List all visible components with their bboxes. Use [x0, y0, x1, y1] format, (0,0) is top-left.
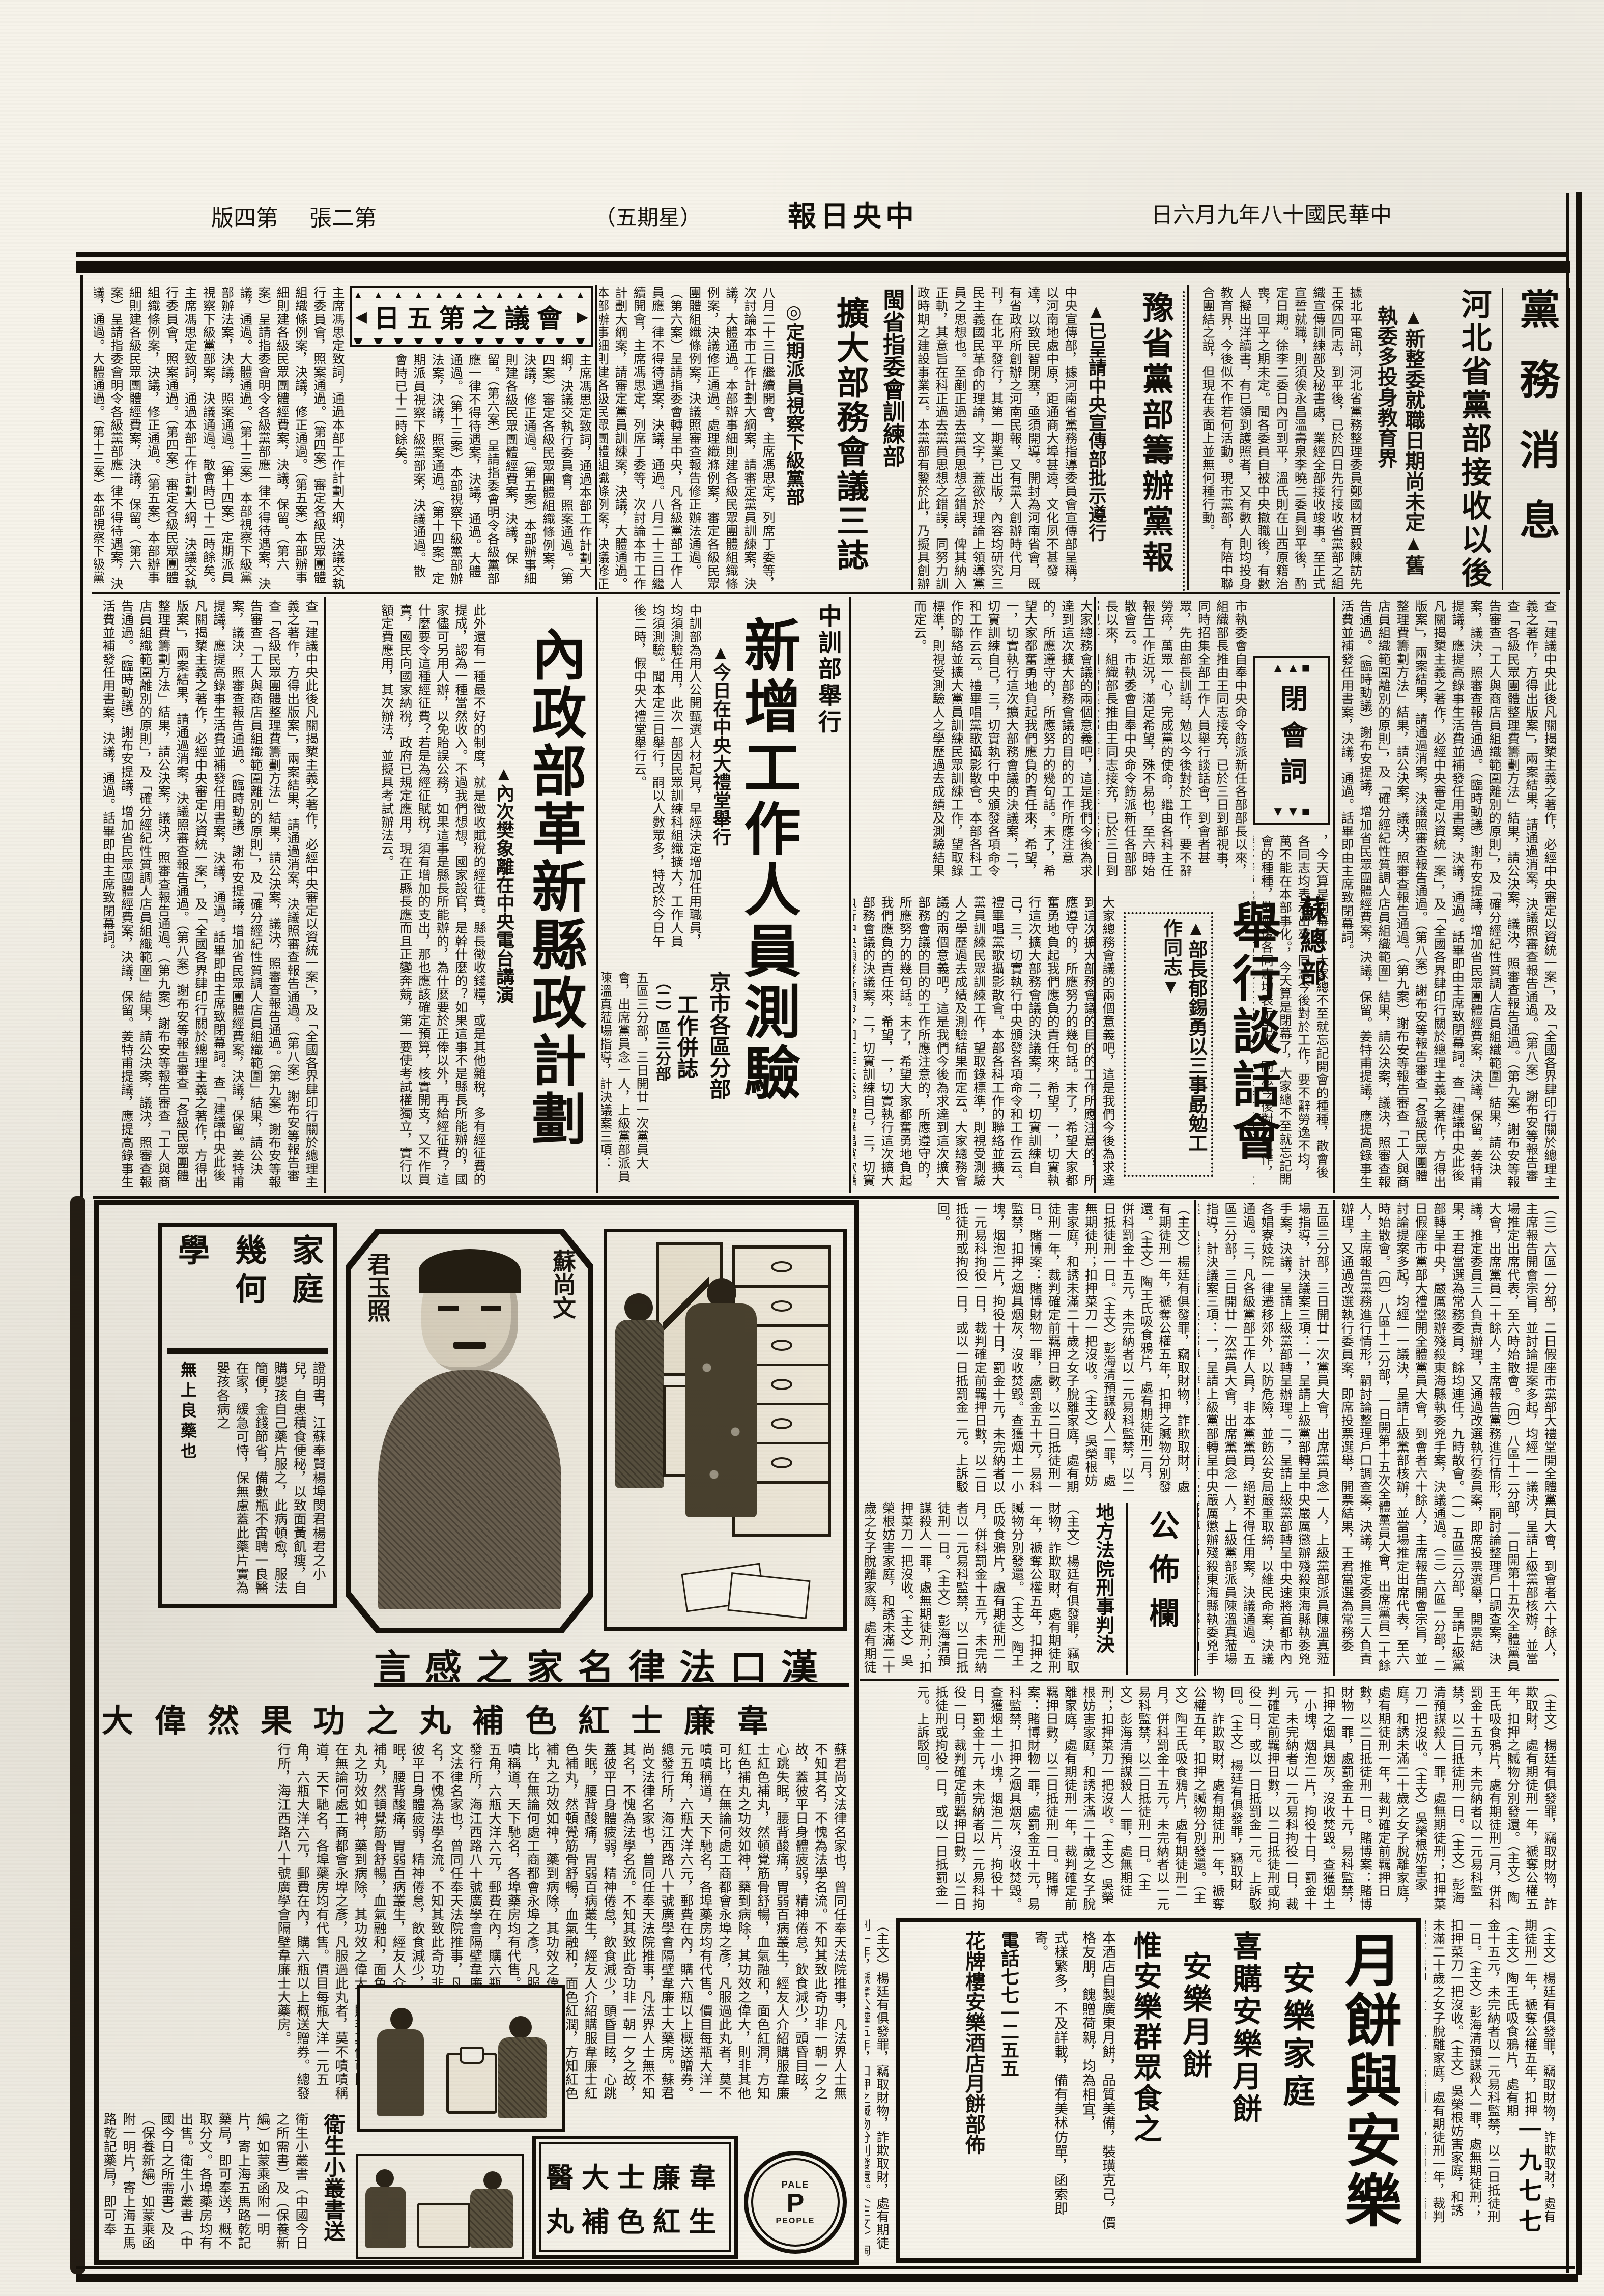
- meeting-day5-body: 主席馮思定致詞，通過本部工作計劃大綱，決議交執行委員會，照案通過。（第四案）審定…: [350, 353, 593, 590]
- subhead-yu: ▲已呈請中央宣傳部批示遵行: [1082, 301, 1109, 586]
- masthead-sheet-number: 張二第: [309, 200, 396, 229]
- branch-reports-body: （三）六區一分部，二日假座市黨部大禮堂開全體黨員大會，到會者六十餘人，主席報告開…: [1337, 1202, 1558, 1675]
- pills-ad-headline: 言感之家名律法口漢: [374, 1638, 850, 1682]
- subhead-su-talk: ▲部長郁錫勇以三事勗勉工作同志▼: [1124, 912, 1213, 1177]
- subhead-min: ◎定期派員視察下級黨部: [781, 301, 807, 586]
- subhead-interior: ▲內次樊象離在中央電台講演: [492, 763, 517, 1150]
- court-body-left-sliver: （主文）楊廷有俱發罪，竊取財物，詐欺取財，處有期徒刑一年，褫奪公權五年，扣押之贓…: [865, 1919, 891, 2262]
- illustration-person2-head: [509, 2016, 532, 2038]
- body-hebei: 據北平電訊，河北省黨務整理委員鄭國材賈毅陳訪先王保四同志，到平後，已於四日先行接…: [1193, 286, 1364, 591]
- subhead-hebei-1: ▲新整委就職日期尚未定: [1402, 305, 1425, 532]
- body-interior: 此外還有一種最不好的制度，就是徵收賦稅的經征費。縣長徵收錢糧，或是其他雜稅，多有…: [329, 604, 488, 1192]
- subhead-hebei: ▲新整委就職日期尚未定▲舊執委多投身教育界: [1368, 305, 1427, 575]
- masthead-page-number: 版四第: [211, 200, 288, 229]
- pills-booklet-label: 衛生小叢書送: [314, 2113, 348, 2259]
- tea-table-illustration: [357, 1985, 565, 2132]
- mooncake-ad-side: 安樂家庭: [1273, 1961, 1320, 2217]
- bottom-rule-thin: [76, 2266, 1575, 2269]
- kicker-min: 閩省指委會訓練部: [876, 288, 908, 527]
- left-border-smudge: [70, 1196, 85, 2274]
- column-divider: [1333, 597, 1335, 1193]
- portrait-eye-right: [481, 1306, 501, 1311]
- mooncake-ad-line1: 喜購安樂月餅: [1223, 1931, 1266, 2234]
- kicker-training: 中訓部舉行: [811, 604, 845, 777]
- headline-min: 擴大部務會議三誌: [810, 296, 873, 590]
- arrow-left-icon: ◀: [355, 308, 367, 326]
- pills-logo-circle: PALE P PEOPLE: [744, 2151, 847, 2254]
- body-min: 八月二十三日繼續開會，主席馮思定，列席丁委等，次討論本市工作計劃大綱案，請審定黨…: [599, 286, 777, 591]
- headline-interior: 內政部革新縣政計劃: [523, 626, 593, 1178]
- triangle-border-bottom: ▼▼▼▼▼▼▼▼▼▼▼▼: [351, 335, 593, 344]
- band2-right-body: 查「建議中央此後凡關揭櫫主義之著作，必經中央審定以資統一案」，及「全國各界肆印行…: [1338, 600, 1558, 1193]
- illustration-person2-body: [498, 2037, 547, 2118]
- header-rule-thick: [76, 261, 1570, 273]
- infant-tablets-ad-body: 證明書，江蘇奉賢楊埠閔君楊君之小兒，自患積食便秘，以致面黃飢瘦，自購嬰孩自己藥片…: [203, 1361, 328, 1600]
- pills-booklet-offer: 衛生小叢書（中國今日之所需書）及（保養新編）如蒙乘函附一明片，寄上海五馬路乾記藥…: [102, 2112, 310, 2259]
- illustration-figure-right-body: [685, 1303, 757, 1517]
- city-branches-subtitle: 工作併誌: [675, 994, 701, 1146]
- illustration-figure-left-head: [624, 1293, 653, 1322]
- column-divider: [1187, 285, 1189, 590]
- pills-brand-line2: 丸補色紅生: [543, 2199, 727, 2240]
- illustration-person1-head: [390, 2008, 413, 2030]
- kicker-su-hq: 蘇總部: [1292, 896, 1329, 1033]
- headline-yu: 豫省黨部籌辦黨報: [1112, 291, 1185, 591]
- ad-title-col-3: 學: [167, 1234, 213, 1265]
- court-body-band3: （主文）楊廷有俱發罪，竊取財物，詐欺取財，處有期徒刑一年，褫奪公權五年，扣押之贓…: [863, 1501, 1081, 1675]
- portrait-inner: 蘇尚文 君玉照: [351, 1234, 588, 1628]
- meeting-day5-box: ▲▲▲▲▲▲▲▲▲▲▲▲ ◀ 日五第之議會 ▶ ▼▼▼▼▼▼▼▼▼▼▼▼: [350, 286, 593, 347]
- column-divider: [1333, 1200, 1335, 1676]
- pills-brand-line1: 醫大士廉韋: [543, 2155, 727, 2195]
- pills-logo-monogram: P: [787, 2190, 805, 2217]
- band3-rule: [860, 1679, 1559, 1681]
- newspaper-page: 版四第 張二第 （五期星） 報日央中 日六月九年八十國民華中 黨務消息 河北省黨…: [0, 0, 1604, 2296]
- right-border-outer: [1576, 192, 1582, 2275]
- court-section-label: 地方法院刑事判決: [1087, 1503, 1116, 1675]
- triangle-border-bottom: ▼▼■: [1271, 805, 1311, 818]
- pills-bottom-illustration: [356, 2154, 524, 2259]
- triangle-border-top: ▲▲■: [1271, 662, 1311, 675]
- infant-tablets-ad: 家庭 幾何 學 證明書，江蘇奉賢楊埠閔君楊君之小兒，自患積食便秘，以致面黃飢瘦，…: [158, 1223, 337, 1608]
- portrait-caption-label: 君玉照: [360, 1252, 394, 1405]
- column-divider: [324, 597, 326, 1193]
- closing-remarks-box: ▲▲■ 閉會詞 ▼▼■: [1253, 656, 1330, 825]
- band2-far-left-body: 查「建議中央此後凡關揭櫫主義之著作，必經中央審定以資統一案」，及「全國各界肆印行…: [94, 600, 320, 1193]
- mooncake-ad-signature: 花牌樓安樂酒店月餅部佈: [959, 1931, 988, 2244]
- band2-mid-body: 市執委會自奉中央命令飭派新任各部部長以來，組織部長推由王同志接充，已於三日到部視…: [1098, 600, 1249, 886]
- section-title-party-news: 黨務消息: [1502, 288, 1571, 590]
- furniture-illustration: [604, 1229, 847, 1631]
- column-divider: [911, 285, 913, 590]
- band2-rule: [93, 1196, 1559, 1199]
- band1-rule: [92, 592, 1560, 594]
- portrait-eye-left: [438, 1306, 459, 1311]
- band2-upper-left-body: 大家總務會議的兩個意義吧，這是我們今後為求達到這次擴大部務會議的目的的工作所應注…: [853, 600, 1094, 889]
- left-border-thin: [80, 275, 83, 1199]
- masthead-weekday: （五期星）: [594, 201, 691, 229]
- mooncake-ad: 月餅與安樂 安樂家庭 喜購安樂月餅 安樂月餅 惟安樂群眾食之 本酒店自製廣東月餅…: [896, 1918, 1421, 2263]
- mooncake-ad-phone: 電話七七一二五五: [995, 1931, 1022, 2218]
- meeting-day5-label: 日五第之議會: [374, 298, 569, 335]
- headline-hebei: 河北省黨部接收以後: [1434, 288, 1496, 590]
- subhead-su-1: ▲部長郁錫勇以三: [1185, 918, 1207, 1075]
- header-rule-thin: [76, 252, 1567, 257]
- bulletin-board-box: 公佈欄: [1126, 1503, 1198, 1675]
- branch-reports-body-2: 五區三分部，三日開廿一次黨員大會，出席黨員念一人，上級黨部派員陳溫真蒞場指導，計…: [1198, 1202, 1331, 1675]
- body-yu: 中央宣傳部，據河南省黨務指導委員會宣傳部呈稱，以河南地處中原，距通商大埠甚遠，文…: [916, 286, 1079, 591]
- mooncake-ad-title: 月餅與安樂: [1327, 1931, 1409, 2250]
- mooncake-ad-line2: 安樂月餅: [1173, 1951, 1216, 2206]
- portrait-hair: [419, 1249, 521, 1293]
- portrait-name-label: 蘇尚文: [546, 1249, 579, 1402]
- pills-ad-subhead: 大偉然果功之丸補色紅士廉韋: [102, 1695, 850, 1736]
- meeting-day5-body-cont: 主席馮思定致詞，通過本部工作計劃大綱，決議交執行委員會，照案通過。（第四案）審定…: [94, 286, 346, 590]
- mooncake-ad-line3: 惟安樂群眾食之: [1125, 1931, 1166, 2234]
- portrait-mustache: [453, 1342, 486, 1349]
- infant-tablets-ad-content: 證明書，江蘇奉賢楊埠閔君楊君之小兒，自患積食便秘，以致面黃飢瘦，自購嬰孩自己藥片…: [162, 1357, 333, 1604]
- pills-brand-box: 醫大士廉韋 丸補色紅生: [532, 2136, 738, 2259]
- arrow-right-icon: ▶: [577, 308, 588, 326]
- city-branches-body: 五區三分部，三日開廿一次黨員大會，出席黨員念一人，上級黨部派員陳溫真蒞場指導，計…: [601, 971, 650, 1193]
- portrait-frame: 蘇尚文 君玉照: [346, 1229, 593, 1633]
- subhead-training-test: ▲今日在中央大禮堂舉行: [709, 642, 734, 958]
- bulletin-board-label: 公佈欄: [1140, 1510, 1184, 1667]
- pills-headline-rule: [374, 1683, 849, 1687]
- bottom-rule-thick: [76, 2274, 1578, 2282]
- illustration-paper-2: [727, 1572, 810, 1619]
- portrait-torso: [378, 1370, 561, 1609]
- corner-numbers: 一九七七: [1506, 2117, 1545, 2260]
- ad-title-col-1: 家庭: [281, 1234, 327, 1311]
- band3-court-lead: （主文）楊廷有俱發罪，竊取財物，詐欺取財，處有期徒刑一年，褫奪公權五年，扣押之贓…: [863, 1202, 1191, 1496]
- court-body-band4: （主文）楊廷有俱發罪，竊取財物，詐欺取財，處有期徒刑一年，褫奪公權五年，扣押之贓…: [863, 1686, 1558, 1911]
- city-branches-title: 京市各區分部: [703, 971, 734, 1185]
- body-su-talk: 大家總務會議的兩個意義吧，這是我們今後為求達到這次擴大部務會議的目的的工作所應注…: [853, 896, 1116, 1193]
- illustration-figure-left-body: [615, 1320, 664, 1488]
- headline-training-test: 新增工作人員測驗: [737, 616, 808, 1125]
- column-divider: [596, 597, 598, 1193]
- column-divider: [849, 597, 851, 1193]
- city-branches-marker: （二）區三分部: [653, 974, 673, 1168]
- column-divider: [595, 285, 597, 590]
- mooncake-ad-body2: 式樣繁多，不及詳載，備有美秫仿單，函索即寄。: [1029, 1931, 1070, 2237]
- illustration-teapot: [460, 2047, 484, 2064]
- illustration-person1-body: [377, 2029, 424, 2116]
- closing-remarks-label: 閉會詞: [1272, 684, 1312, 796]
- headline-su-talk: 舉行談話會: [1220, 900, 1287, 1193]
- body-training-test: 中訓部為用人公開甄選人材起見，早經決定增加任用職員，均須測驗任用，此次一部因民眾…: [601, 604, 703, 958]
- infant-tablets-ad-header: 家庭 幾何 學: [162, 1227, 333, 1345]
- ad-title-col-2: 幾何: [224, 1234, 270, 1311]
- mooncake-ad-body1: 本酒店自製廣東月餅，品質美備，裝璜克己，價格友朋，餽贈荷親，均為相宜，: [1077, 1931, 1118, 2237]
- infant-tablets-ad-tail: 無上良藥也: [176, 1361, 199, 1600]
- triangle-border-top: ▲▲▲▲▲▲▲▲▲▲▲▲: [351, 289, 593, 298]
- masthead-paper-title: 報日央中: [788, 193, 925, 229]
- column-divider: [1094, 597, 1096, 1193]
- pills-logo-text-bottom: PEOPLE: [776, 2217, 815, 2226]
- masthead-date: 日六月九年八十國民華中: [1151, 197, 1400, 228]
- ad-header-rule: [167, 1348, 328, 1354]
